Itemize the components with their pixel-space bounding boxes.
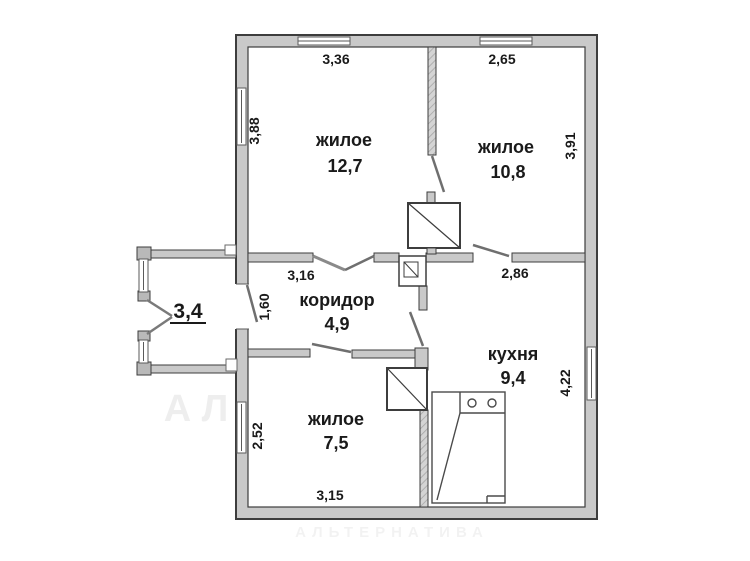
- room-area-living1: 12,7: [327, 156, 362, 176]
- window-top-living2: [480, 37, 532, 45]
- room-area-kitchen: 9,4: [500, 368, 525, 388]
- room-area-living3: 7,5: [323, 433, 348, 453]
- dim-living2-width: 2,65: [488, 51, 515, 67]
- wall-stub-lower: [226, 359, 237, 371]
- flue-box: [399, 256, 426, 286]
- porch-bottom-wall: [150, 365, 236, 373]
- floor-plan-page: АЛЬТЕРНАТИВА a-brest.by АЛЬТЕРНАТИВА: [0, 0, 750, 561]
- porch-window-upper: [139, 259, 148, 292]
- wall-stub-upper: [225, 245, 236, 255]
- furnace-main: [408, 203, 460, 254]
- window-left-living1: [237, 88, 246, 145]
- room-label-kitchen: кухня: [488, 344, 539, 364]
- dim-entry-height: 1,60: [256, 293, 272, 320]
- dim-living3-width: 3,15: [316, 487, 343, 503]
- dim-living3-height: 2,52: [249, 422, 265, 449]
- dim-kitchen-width: 2,86: [501, 265, 528, 281]
- room-label-corridor: коридор: [299, 290, 374, 310]
- dim-living2-height: 3,91: [562, 132, 578, 159]
- living3-kitchen-partition: [420, 410, 428, 507]
- porch-window-lower: [139, 340, 148, 363]
- dim-living1-height: 3,88: [246, 117, 262, 144]
- kitchen-stove-unit: [432, 392, 505, 503]
- floor-plan-drawing: АЛЬТЕРНАТИВА a-brest.by АЛЬТЕРНАТИВА: [0, 0, 750, 561]
- dim-corridor-width: 3,16: [287, 267, 314, 283]
- room-area-porch: 3,4: [173, 300, 203, 323]
- room-label-living1: жилое: [315, 130, 372, 150]
- porch-door-leaf-a: [147, 300, 172, 316]
- dim-kitchen-height: 4,22: [557, 369, 573, 396]
- room-area-corridor: 4,9: [324, 314, 349, 334]
- porch-top-wall: [150, 250, 236, 258]
- window-right-kitchen: [587, 347, 596, 400]
- room-label-living3: жилое: [307, 409, 364, 429]
- dim-living1-width: 3,36: [322, 51, 349, 67]
- window-left-living3: [237, 402, 246, 453]
- window-top-living1: [298, 37, 350, 45]
- porch-post: [137, 362, 151, 375]
- porch-door-leaf-b: [147, 317, 172, 334]
- room-area-living2: 10,8: [490, 162, 525, 182]
- porch-post: [137, 247, 151, 260]
- room-label-living2: жилое: [477, 137, 534, 157]
- furnace-living3: [387, 368, 427, 410]
- watermark-footer-text: АЛЬТЕРНАТИВА: [295, 524, 489, 541]
